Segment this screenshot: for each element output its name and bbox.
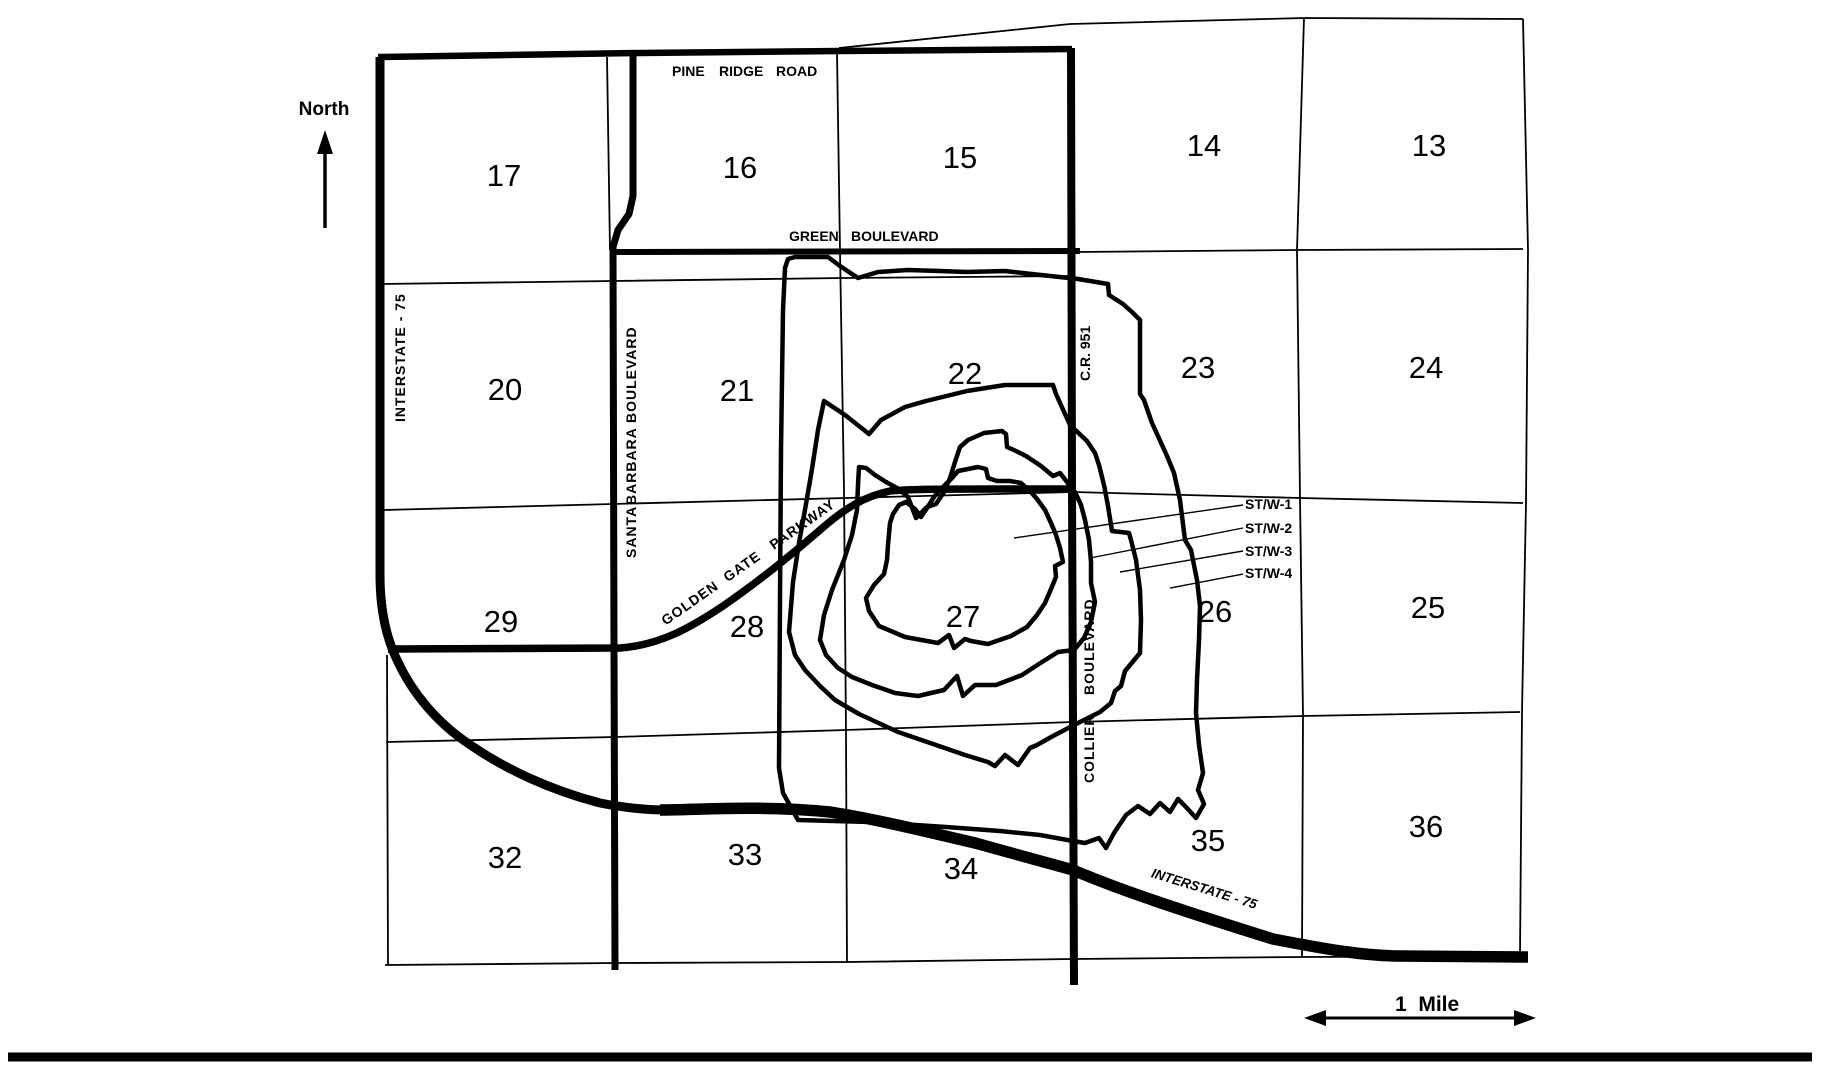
svg-text:COLLIER: COLLIER: [1081, 715, 1097, 783]
svg-text:1 Mile: 1 Mile: [1395, 993, 1459, 1016]
svg-text:North: North: [299, 99, 350, 120]
svg-text:SANTA: SANTA: [623, 506, 639, 558]
svg-text:PINERIDGEROAD: PINERIDGEROAD: [672, 63, 817, 79]
svg-text:21: 21: [720, 373, 754, 408]
svg-text:ST/W-4: ST/W-4: [1245, 565, 1292, 581]
svg-text:C.R. 951: C.R. 951: [1077, 326, 1093, 381]
svg-text:34: 34: [944, 851, 978, 886]
svg-text:ST/W-2: ST/W-2: [1245, 520, 1292, 536]
svg-text:29: 29: [484, 604, 518, 639]
svg-text:32: 32: [488, 840, 522, 875]
svg-text:23: 23: [1181, 350, 1215, 385]
svg-text:36: 36: [1409, 809, 1443, 844]
svg-text:16: 16: [723, 150, 757, 185]
svg-text:26: 26: [1198, 594, 1232, 629]
svg-text:28: 28: [730, 609, 764, 644]
svg-text:ST/W-3: ST/W-3: [1245, 543, 1292, 559]
svg-text:27: 27: [946, 599, 980, 634]
svg-text:17: 17: [487, 158, 521, 193]
svg-text:25: 25: [1411, 590, 1445, 625]
svg-text:ST/W-1: ST/W-1: [1245, 496, 1292, 512]
svg-text:14: 14: [1187, 128, 1221, 163]
svg-text:GREENBOULEVARD: GREENBOULEVARD: [789, 228, 939, 244]
svg-text:BOULEVARD: BOULEVARD: [1081, 598, 1097, 695]
svg-text:22: 22: [948, 356, 982, 391]
svg-text:24: 24: [1409, 350, 1443, 385]
svg-text:INTERSTATE - 75: INTERSTATE - 75: [392, 293, 408, 422]
svg-text:35: 35: [1191, 823, 1225, 858]
svg-text:15: 15: [943, 140, 977, 175]
svg-text:BOULEVARD: BOULEVARD: [623, 326, 639, 423]
svg-text:BARBARA: BARBARA: [623, 427, 639, 505]
svg-text:13: 13: [1412, 128, 1446, 163]
svg-text:33: 33: [728, 837, 762, 872]
svg-text:20: 20: [488, 372, 522, 407]
